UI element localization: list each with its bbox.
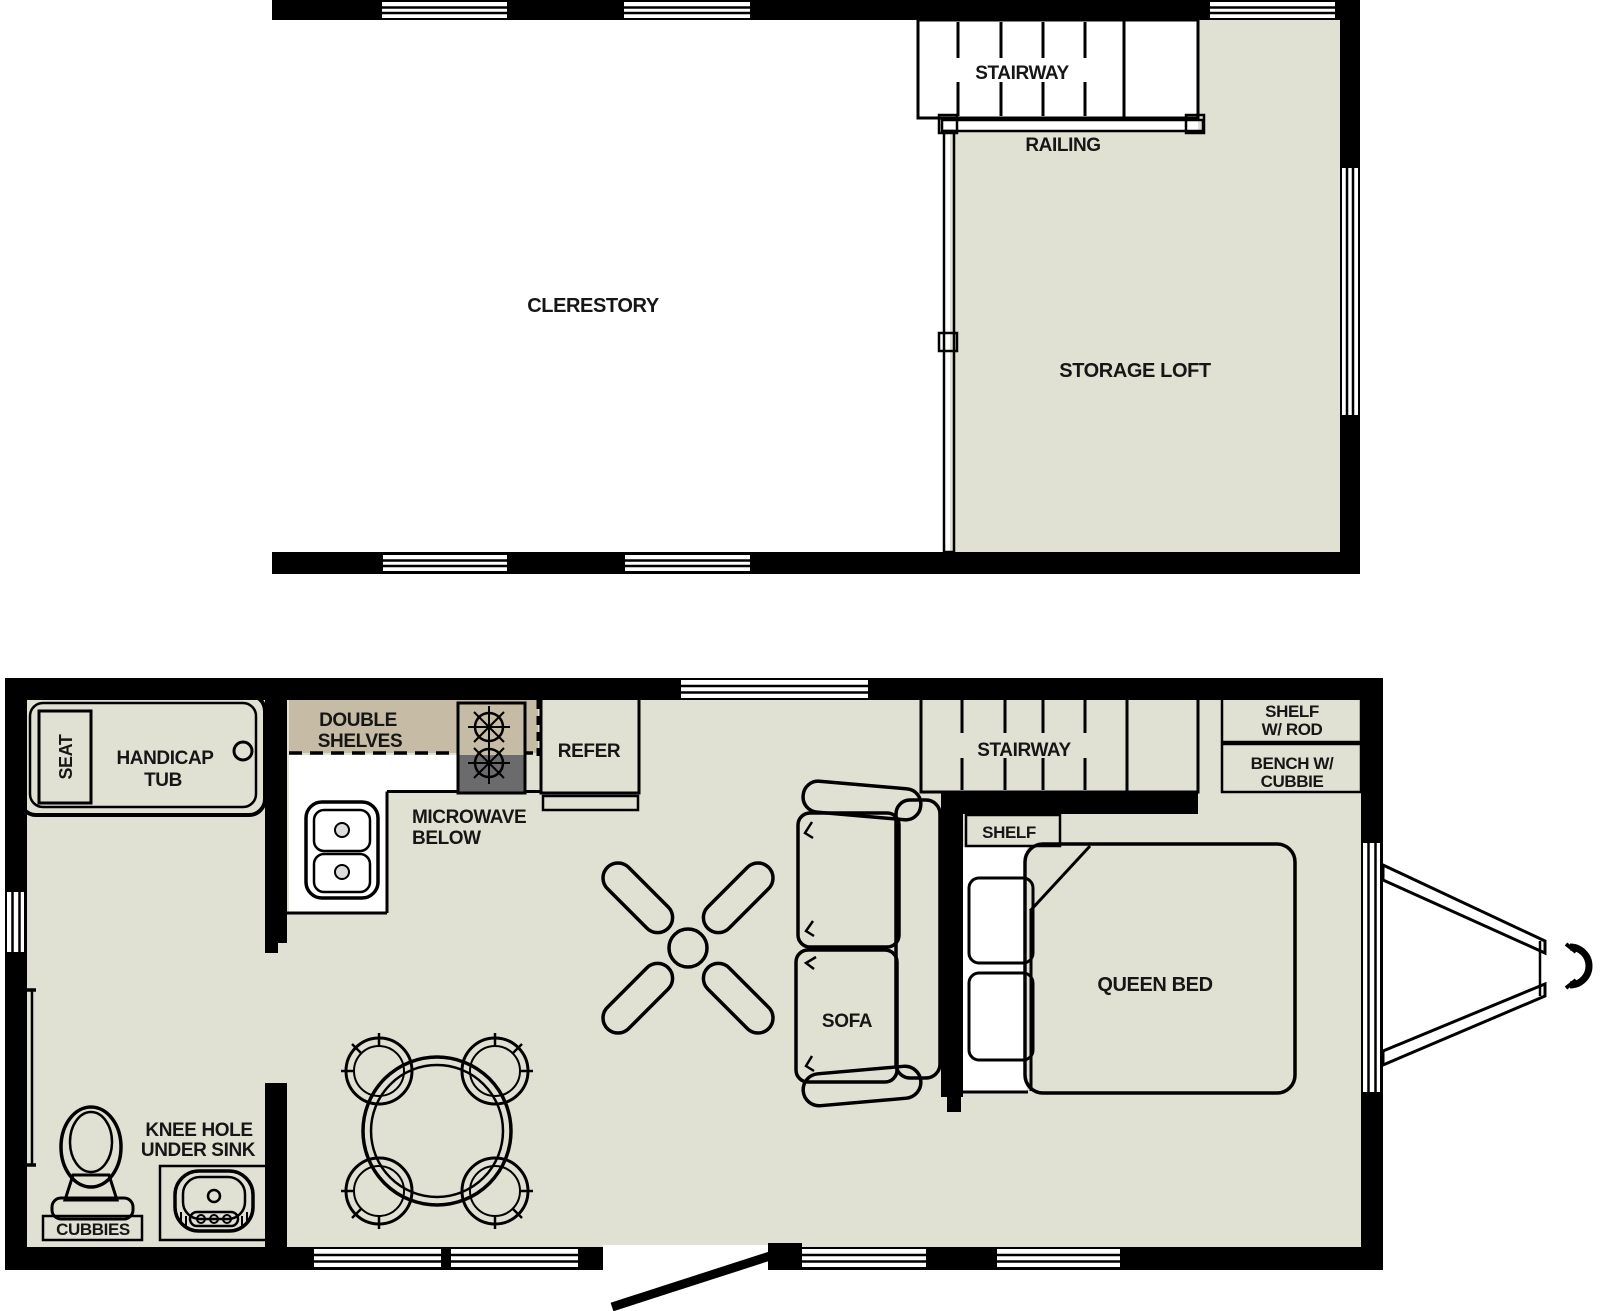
window (802, 1249, 926, 1267)
window (625, 555, 750, 571)
handicap-tub-label-2: TUB (144, 770, 182, 791)
window (7, 892, 24, 952)
shelf-with-rod-label-1: SHELF (1265, 702, 1319, 721)
upper-floor-plan: STAIRWAY RAILING CLERESTORY STORAGE LOFT (272, 0, 1360, 574)
bedroom-wall (941, 792, 963, 1097)
double-shelves-label-1: DOUBLE (319, 710, 397, 731)
stairway-upper-label: STAIRWAY (975, 63, 1069, 84)
burner-icon (468, 742, 510, 784)
window (1342, 168, 1358, 415)
handicap-tub-label-1: HANDICAP (116, 748, 214, 769)
refrigerator-label: REFER (558, 741, 621, 762)
storage-loft-label: STORAGE LOFT (1059, 360, 1211, 382)
bed-shelf-label: SHELF (982, 823, 1036, 842)
stairway-upper: STAIRWAY (918, 20, 1198, 118)
window (314, 1249, 441, 1267)
bench-with-cubbie-label-1: BENCH W/ (1251, 754, 1334, 773)
knee-hole-label-1: KNEE HOLE (145, 1120, 252, 1141)
window (382, 2, 507, 18)
cubbies-label: CUBBIES (56, 1220, 130, 1239)
bathroom-door-jamb (265, 943, 278, 953)
queen-bed-label: QUEEN BED (1097, 974, 1212, 996)
stairway-main-label: STAIRWAY (977, 740, 1071, 761)
microwave-label-2: BELOW (412, 828, 481, 849)
window (383, 555, 507, 571)
bed-platform (963, 847, 1027, 1092)
floorplan-drawing: STAIRWAY RAILING CLERESTORY STORAGE LOFT (0, 0, 1600, 1311)
main-floor-plan: SEAT HANDICAP TUB DOUBLE SHELVES (5, 678, 1589, 1307)
bench-with-cubbie-label-2: CUBBIE (1261, 772, 1324, 791)
entry-door (603, 1243, 802, 1307)
window (624, 2, 750, 18)
bathroom-wall-lower (265, 1083, 287, 1247)
shelf-with-rod-label-2: W/ ROD (1262, 720, 1323, 739)
bedroom-wall-foot (947, 1097, 961, 1112)
storage-loft (950, 20, 1340, 552)
double-shelves-label-2: SHELVES (318, 731, 402, 752)
window (681, 680, 868, 698)
floorplan-page: STAIRWAY RAILING CLERESTORY STORAGE LOFT (0, 0, 1600, 1311)
hitch-coupler (1570, 947, 1589, 985)
window (451, 1249, 578, 1267)
clerestory-label: CLERESTORY (527, 295, 660, 317)
knee-hole-label-2: UNDER SINK (141, 1140, 256, 1161)
stair-base-wall (941, 792, 1198, 814)
window (1363, 843, 1380, 1092)
trailer-hitch (1383, 865, 1589, 1065)
main-left-wall (5, 678, 27, 1270)
tub-seat-label: SEAT (56, 734, 76, 779)
microwave-label-1: MICROWAVE (412, 807, 526, 828)
burner-icon (468, 706, 510, 748)
sofa-label: SOFA (822, 1011, 873, 1032)
range-cooktop (458, 703, 525, 793)
window (1210, 2, 1335, 18)
window (997, 1249, 1120, 1267)
bathroom-wall-upper (265, 700, 287, 943)
railing-label: RAILING (1025, 135, 1100, 156)
